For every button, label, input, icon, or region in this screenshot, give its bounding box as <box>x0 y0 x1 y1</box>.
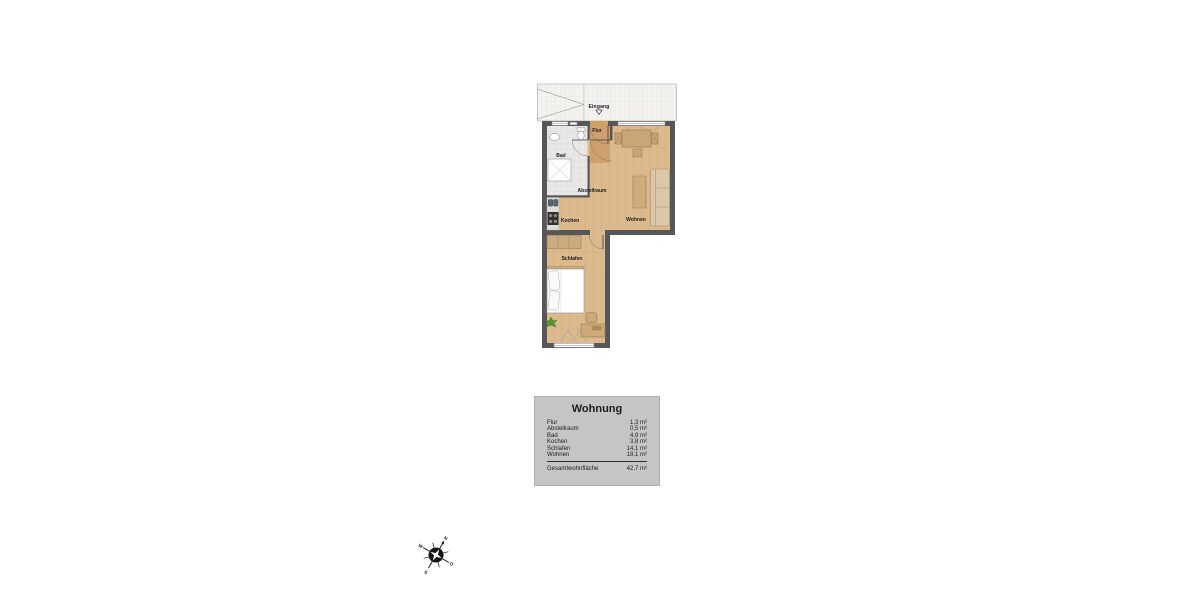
legend-divider <box>547 461 647 462</box>
compass-south-label: S <box>423 569 428 575</box>
room-name: Wohnen <box>547 452 569 458</box>
kitchen-fixtures <box>547 198 559 231</box>
total-value: 42,7 m² <box>627 466 647 472</box>
desk-chair <box>586 313 597 323</box>
area-legend: Wohnung Flur 1,3 m² Abstellraum 0,5 m² B… <box>534 396 660 486</box>
stool <box>633 149 642 157</box>
wc-tank <box>577 128 585 132</box>
compass-north-label: N <box>443 535 448 541</box>
room-label-flur: Flur <box>592 128 601 134</box>
sink <box>550 133 560 140</box>
sink-basin <box>554 200 558 207</box>
pillow <box>548 271 560 291</box>
legend-total-row: Gesamtwohnfläche 42,7 m² <box>547 466 647 472</box>
pillow <box>548 291 560 311</box>
room-label-abstellraum: Abstellraum <box>578 188 607 194</box>
total-label: Gesamtwohnfläche <box>547 466 598 472</box>
floor-plan-drawing: Eingang Flur Bad Abstellraum Kochen Wohn… <box>537 83 677 349</box>
floorplan-page: Eingang Flur Bad Abstellraum Kochen Wohn… <box>0 0 1200 600</box>
compass-west-label: W <box>417 543 424 550</box>
dining-table <box>622 130 651 147</box>
legend-row-wohnen: Wohnen 18,1 m² <box>547 452 647 458</box>
coffee-table <box>633 176 646 208</box>
compass-rose-icon: N O S W <box>414 533 458 577</box>
legend-rows: Flur 1,3 m² Abstellraum 0,5 m² Bad 4,9 m… <box>547 420 647 458</box>
sink-basin <box>548 200 552 207</box>
compass-east-label: O <box>449 561 455 567</box>
room-label-schlafen: Schlafen <box>562 256 583 262</box>
room-label-kochen: Kochen <box>561 218 579 224</box>
headboard <box>547 267 584 270</box>
sofa <box>651 169 670 226</box>
stove <box>548 212 559 225</box>
legend-title: Wohnung <box>535 403 659 415</box>
room-label-eingang: Eingang <box>588 104 609 110</box>
room-label-bad: Bad <box>556 153 565 159</box>
floor-plan: Eingang Flur Bad Abstellraum Kochen Wohn… <box>537 83 677 349</box>
wc <box>578 131 584 139</box>
wardrobe <box>547 236 581 249</box>
entrance-walkway <box>537 84 676 121</box>
room-label-wohnen: Wohnen <box>626 217 646 223</box>
room-area: 18,1 m² <box>627 452 647 458</box>
